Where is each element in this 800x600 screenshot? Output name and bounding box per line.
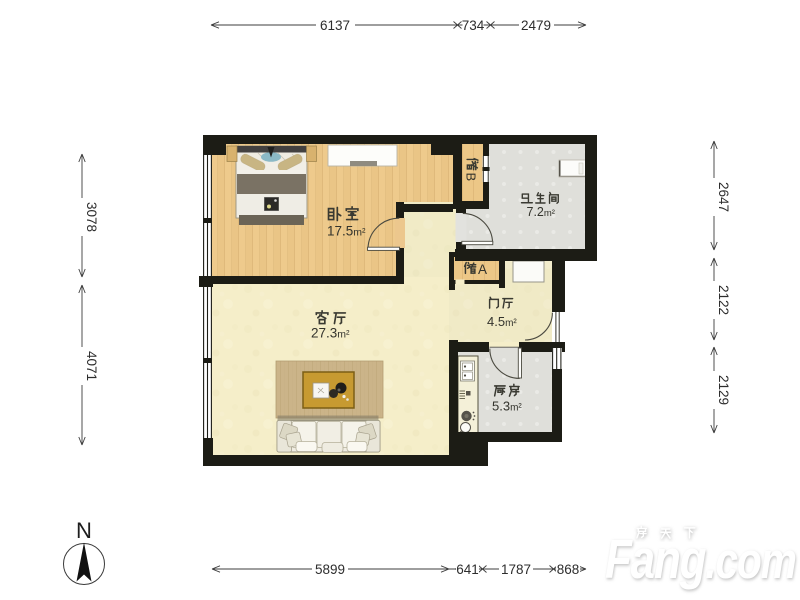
svg-text:4071: 4071 (84, 351, 99, 381)
svg-text:5899: 5899 (315, 562, 345, 577)
svg-text:868: 868 (557, 562, 580, 577)
svg-text:1787: 1787 (501, 562, 531, 577)
svg-text:7.2m²: 7.2m² (527, 205, 555, 219)
svg-text:A: A (478, 262, 487, 277)
svg-text:6137: 6137 (320, 18, 350, 33)
svg-text:Fang.com: Fang.com (605, 528, 796, 590)
svg-text:2122: 2122 (716, 285, 731, 315)
svg-text:2129: 2129 (716, 375, 731, 405)
svg-text:2479: 2479 (521, 18, 551, 33)
svg-text:17.5m²: 17.5m² (327, 224, 366, 239)
svg-text:27.3m²: 27.3m² (311, 326, 350, 341)
svg-text:641: 641 (456, 562, 479, 577)
svg-text:3078: 3078 (84, 202, 99, 232)
svg-text:734: 734 (462, 18, 485, 33)
svg-text:2647: 2647 (716, 182, 731, 212)
svg-text:N: N (76, 518, 92, 543)
svg-text:B: B (464, 173, 479, 182)
